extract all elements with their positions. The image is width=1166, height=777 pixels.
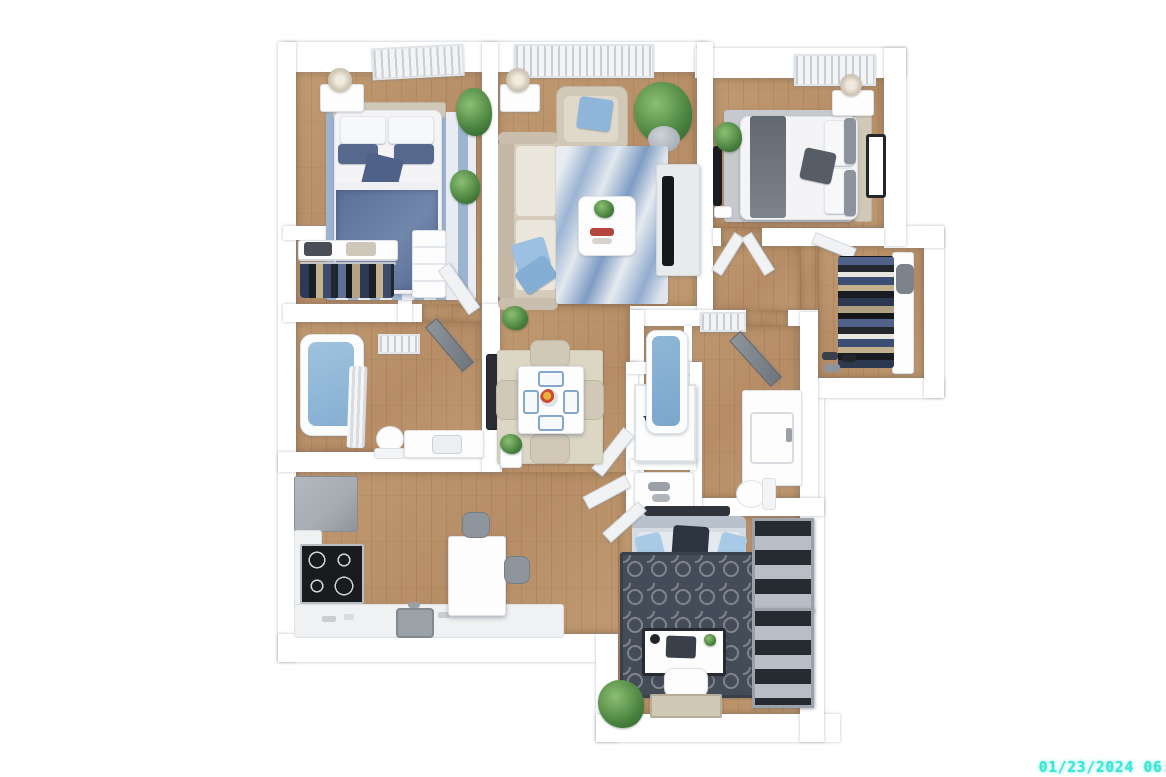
kitchen-fridge [294,476,358,532]
living-armchair-pillow [576,96,614,132]
bedroom2-tv [713,146,722,206]
bathroom2-toilet-tank [762,478,776,510]
coffee-table-books-red [590,228,614,236]
coffee-table-books-gray [592,238,612,244]
living-sofa-back [498,140,514,300]
kitchen-island [448,536,506,616]
bathroom1-sink [432,435,462,454]
bathroom2-ceiling-vent [700,312,746,332]
bathroom1-toilet-tank [374,448,406,459]
den-desk-plant [704,634,716,646]
kitchen-faucet [408,602,420,608]
dining-chair-bottom [530,434,570,464]
walkin-closet-bag [896,264,914,294]
kitchen-stool-top [462,512,490,538]
bedroom2-wall-right [884,48,906,246]
living-sofa-armrest-top [498,132,558,144]
wd-niche-slippers-a [648,482,670,491]
bedroom2-plant [714,122,742,152]
dining-fruit-bowl [540,389,558,407]
bathroom2-door-gap-floor [746,310,788,326]
kitchen-stove [300,544,364,604]
camera-timestamp: 01/23/2024 06: [1039,758,1166,776]
bathroom2-wall-left [630,310,644,370]
bedroom2-wall-bottom-a [713,228,721,246]
bedroom1-ceiling-vent [371,44,465,81]
kitchen-sink [396,608,434,638]
bedroom1-lamp [328,68,352,92]
den-bookcase-lower [752,608,814,708]
closet1-hanging-clothes [300,264,394,298]
floorplan-render: W/D [0,0,1166,777]
bedroom1-living-wall [482,42,498,306]
walkin-closet-hanging-clothes [838,256,894,368]
closet2-entry-floor [800,246,818,312]
dining-placemat-right [563,390,579,414]
bedroom2-pillow-gray-bottom [844,170,856,216]
dining-plant [500,434,522,454]
bedroom1-plant-tall [456,88,492,136]
den-laptop [666,635,697,658]
hallway-plant [502,306,528,330]
living-tv [662,176,674,266]
bedroom2-accent-pillow [799,147,837,185]
den-bookcase-upper [752,518,814,612]
walkin-closet-shoes-c [824,364,840,372]
bedroom1-dresser [412,230,446,298]
bedroom2-lamp [840,74,862,96]
closet2-wall-right [924,228,944,398]
closet2-wall-bottom [800,378,944,398]
bedroom1-pillow-white-right [388,116,434,144]
bedroom2-wall-art [866,134,886,198]
dining-chair-top [530,340,570,368]
bathroom1-shower-curtain [347,366,368,449]
bathroom2-wall-right [800,312,818,514]
walkin-closet-shoes-b [842,354,856,362]
den-desk-lamp [650,634,660,644]
coffee-table-plant [594,200,614,218]
bedroom1-plant-small [450,170,480,204]
dining-placemat-left [523,390,539,414]
bathroom2-tub-water [652,336,680,426]
kitchen-wall-bottom [278,634,618,662]
living-room-window-blinds [514,44,654,78]
bedroom2-shelf [714,206,732,218]
entry-doormat [650,694,722,718]
dining-placemat-top [538,371,564,387]
living-sofa-cushion-top [516,146,556,216]
bedroom2-ceiling-vent [794,54,876,86]
bedroom2-pillow-gray-top [844,118,856,164]
kitchen-counter-item-a [322,616,336,622]
living-lamp [506,68,530,92]
closet1-storage-box-light [346,242,376,256]
bedroom2-bed-runner [750,116,786,218]
bedroom1-pillow-white-left [340,116,386,144]
kitchen-stool-right [504,556,530,584]
closet1-storage-box-dark [304,242,332,256]
den-console-shelf [644,506,730,516]
den-floor-plant [598,680,644,728]
walkin-closet-shoes-a [822,352,838,360]
wd-niche-slippers-b [652,494,670,502]
kitchen-counter-item-b [344,614,354,620]
dining-placemat-bottom [538,415,564,431]
bathroom1-ceiling-vent [378,334,420,354]
bathroom2-faucet [786,428,792,442]
